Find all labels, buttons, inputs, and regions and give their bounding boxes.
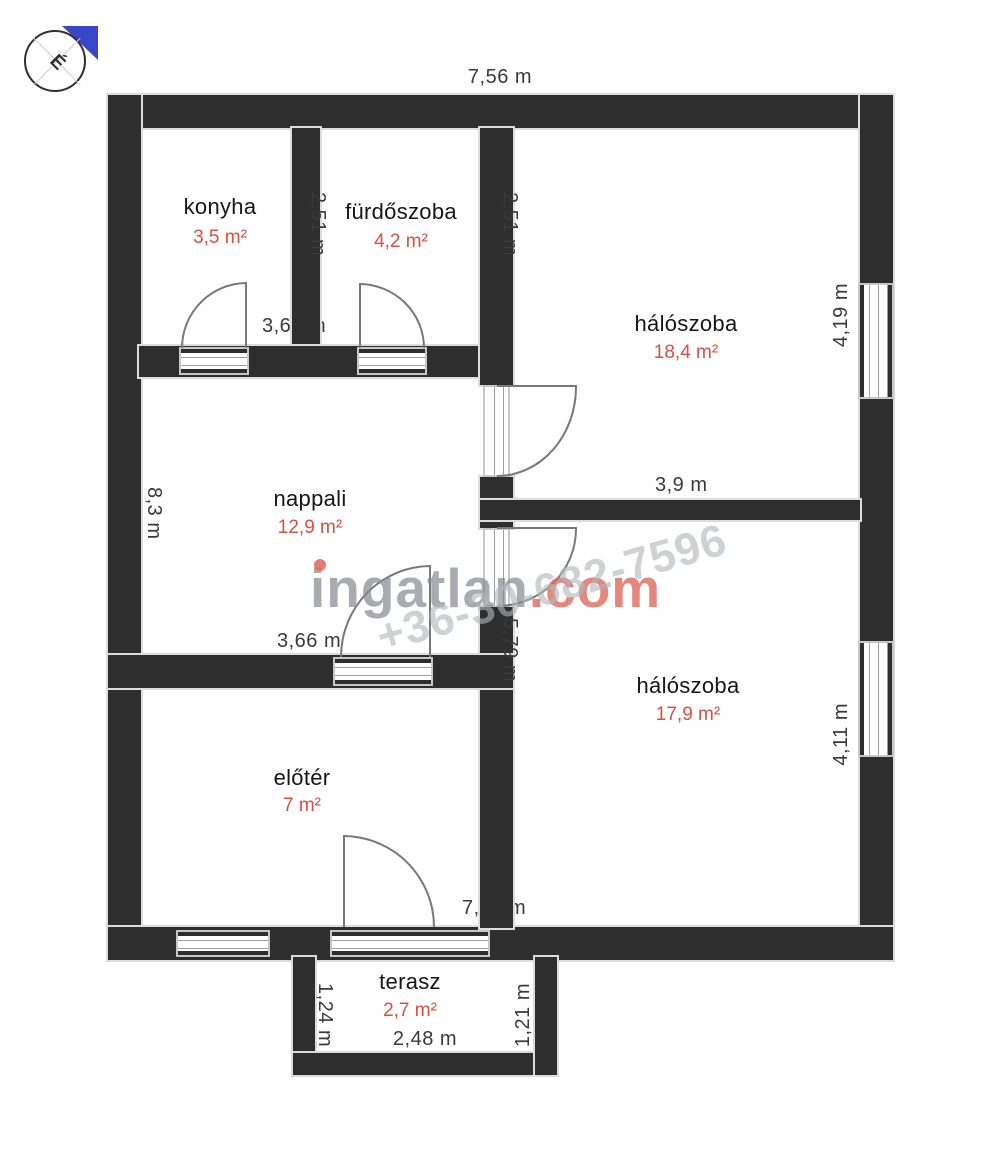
wall-exterior-top bbox=[108, 95, 893, 128]
dimension-bedroom1-width: 3,9 m bbox=[655, 474, 708, 497]
window-hall-bottom bbox=[176, 930, 270, 957]
dimension-left-height: 8,3 m bbox=[142, 487, 165, 540]
dimension-top-width: 7,56 m bbox=[450, 66, 550, 89]
compass-circle: É bbox=[24, 30, 86, 92]
room-area-terrace: 2,7 m² bbox=[330, 1000, 490, 1022]
dimension-living-width: 3,66 m bbox=[277, 630, 341, 653]
room-label-hall: előtér bbox=[222, 765, 382, 791]
door-leaf-bedroom1 bbox=[497, 385, 577, 387]
room-label-bedroom1: hálószoba bbox=[596, 311, 776, 337]
door-arc-bathroom bbox=[359, 283, 425, 348]
dimension-terrace-width: 2,48 m bbox=[355, 1028, 495, 1051]
terrace-door bbox=[330, 930, 490, 957]
wall-terrace-right bbox=[535, 957, 557, 1075]
dimension-bedroom2-window: 4,11 m bbox=[830, 703, 853, 766]
room-area-bedroom2: 17,9 m² bbox=[598, 704, 778, 726]
door-sill-living bbox=[333, 657, 433, 686]
room-label-kitchen: konyha bbox=[150, 194, 290, 220]
wall-exterior-right bbox=[860, 95, 893, 960]
room-label-terrace: terasz bbox=[330, 969, 490, 995]
dimension-bedroom1-window: 4,19 m bbox=[830, 283, 853, 347]
door-arc-hall bbox=[343, 835, 435, 927]
room-label-bedroom2: hálószoba bbox=[598, 673, 778, 699]
room-label-bathroom: fürdőszoba bbox=[325, 199, 477, 225]
door-sill-kitchen bbox=[179, 347, 249, 375]
dimension-bedroom1-wall: 2,51 m bbox=[498, 192, 521, 256]
door-leaf-bathroom bbox=[359, 283, 361, 348]
wall-exterior-left bbox=[108, 95, 141, 960]
door-leaf-kitchen bbox=[245, 282, 247, 348]
door-arc-bedroom1 bbox=[497, 387, 577, 477]
floor-plan: É 3,66 m 7,56 m konyha 3,5 m² fürdőszoba… bbox=[0, 0, 1000, 1176]
watermark-i-dot bbox=[314, 559, 326, 571]
room-area-living: 12,9 m² bbox=[230, 517, 390, 539]
room-area-hall: 7 m² bbox=[222, 795, 382, 817]
room-area-bedroom1: 18,4 m² bbox=[596, 342, 776, 364]
door-leaf-bedroom2 bbox=[497, 527, 577, 529]
wall-bedrooms-divider bbox=[480, 500, 860, 520]
room-label-living: nappali bbox=[230, 486, 390, 512]
dimension-terrace-left: 1,24 m bbox=[313, 983, 336, 1047]
room-area-bathroom: 4,2 m² bbox=[325, 231, 477, 253]
door-arc-kitchen bbox=[181, 282, 247, 348]
dimension-bathroom-height: 2,51 m bbox=[306, 192, 329, 256]
window-bedroom1 bbox=[858, 283, 894, 399]
window-bedroom2 bbox=[858, 641, 894, 757]
door-sill-bathroom bbox=[357, 347, 427, 375]
room-area-kitchen: 3,5 m² bbox=[150, 227, 290, 249]
wall-terrace-bottom bbox=[293, 1053, 557, 1075]
door-leaf-hall bbox=[343, 835, 345, 927]
dimension-terrace-right: 1,21 m bbox=[512, 983, 535, 1047]
wall-living-hall-divider bbox=[108, 655, 513, 688]
compass: É bbox=[22, 26, 98, 102]
wall-central-upper bbox=[480, 128, 513, 385]
